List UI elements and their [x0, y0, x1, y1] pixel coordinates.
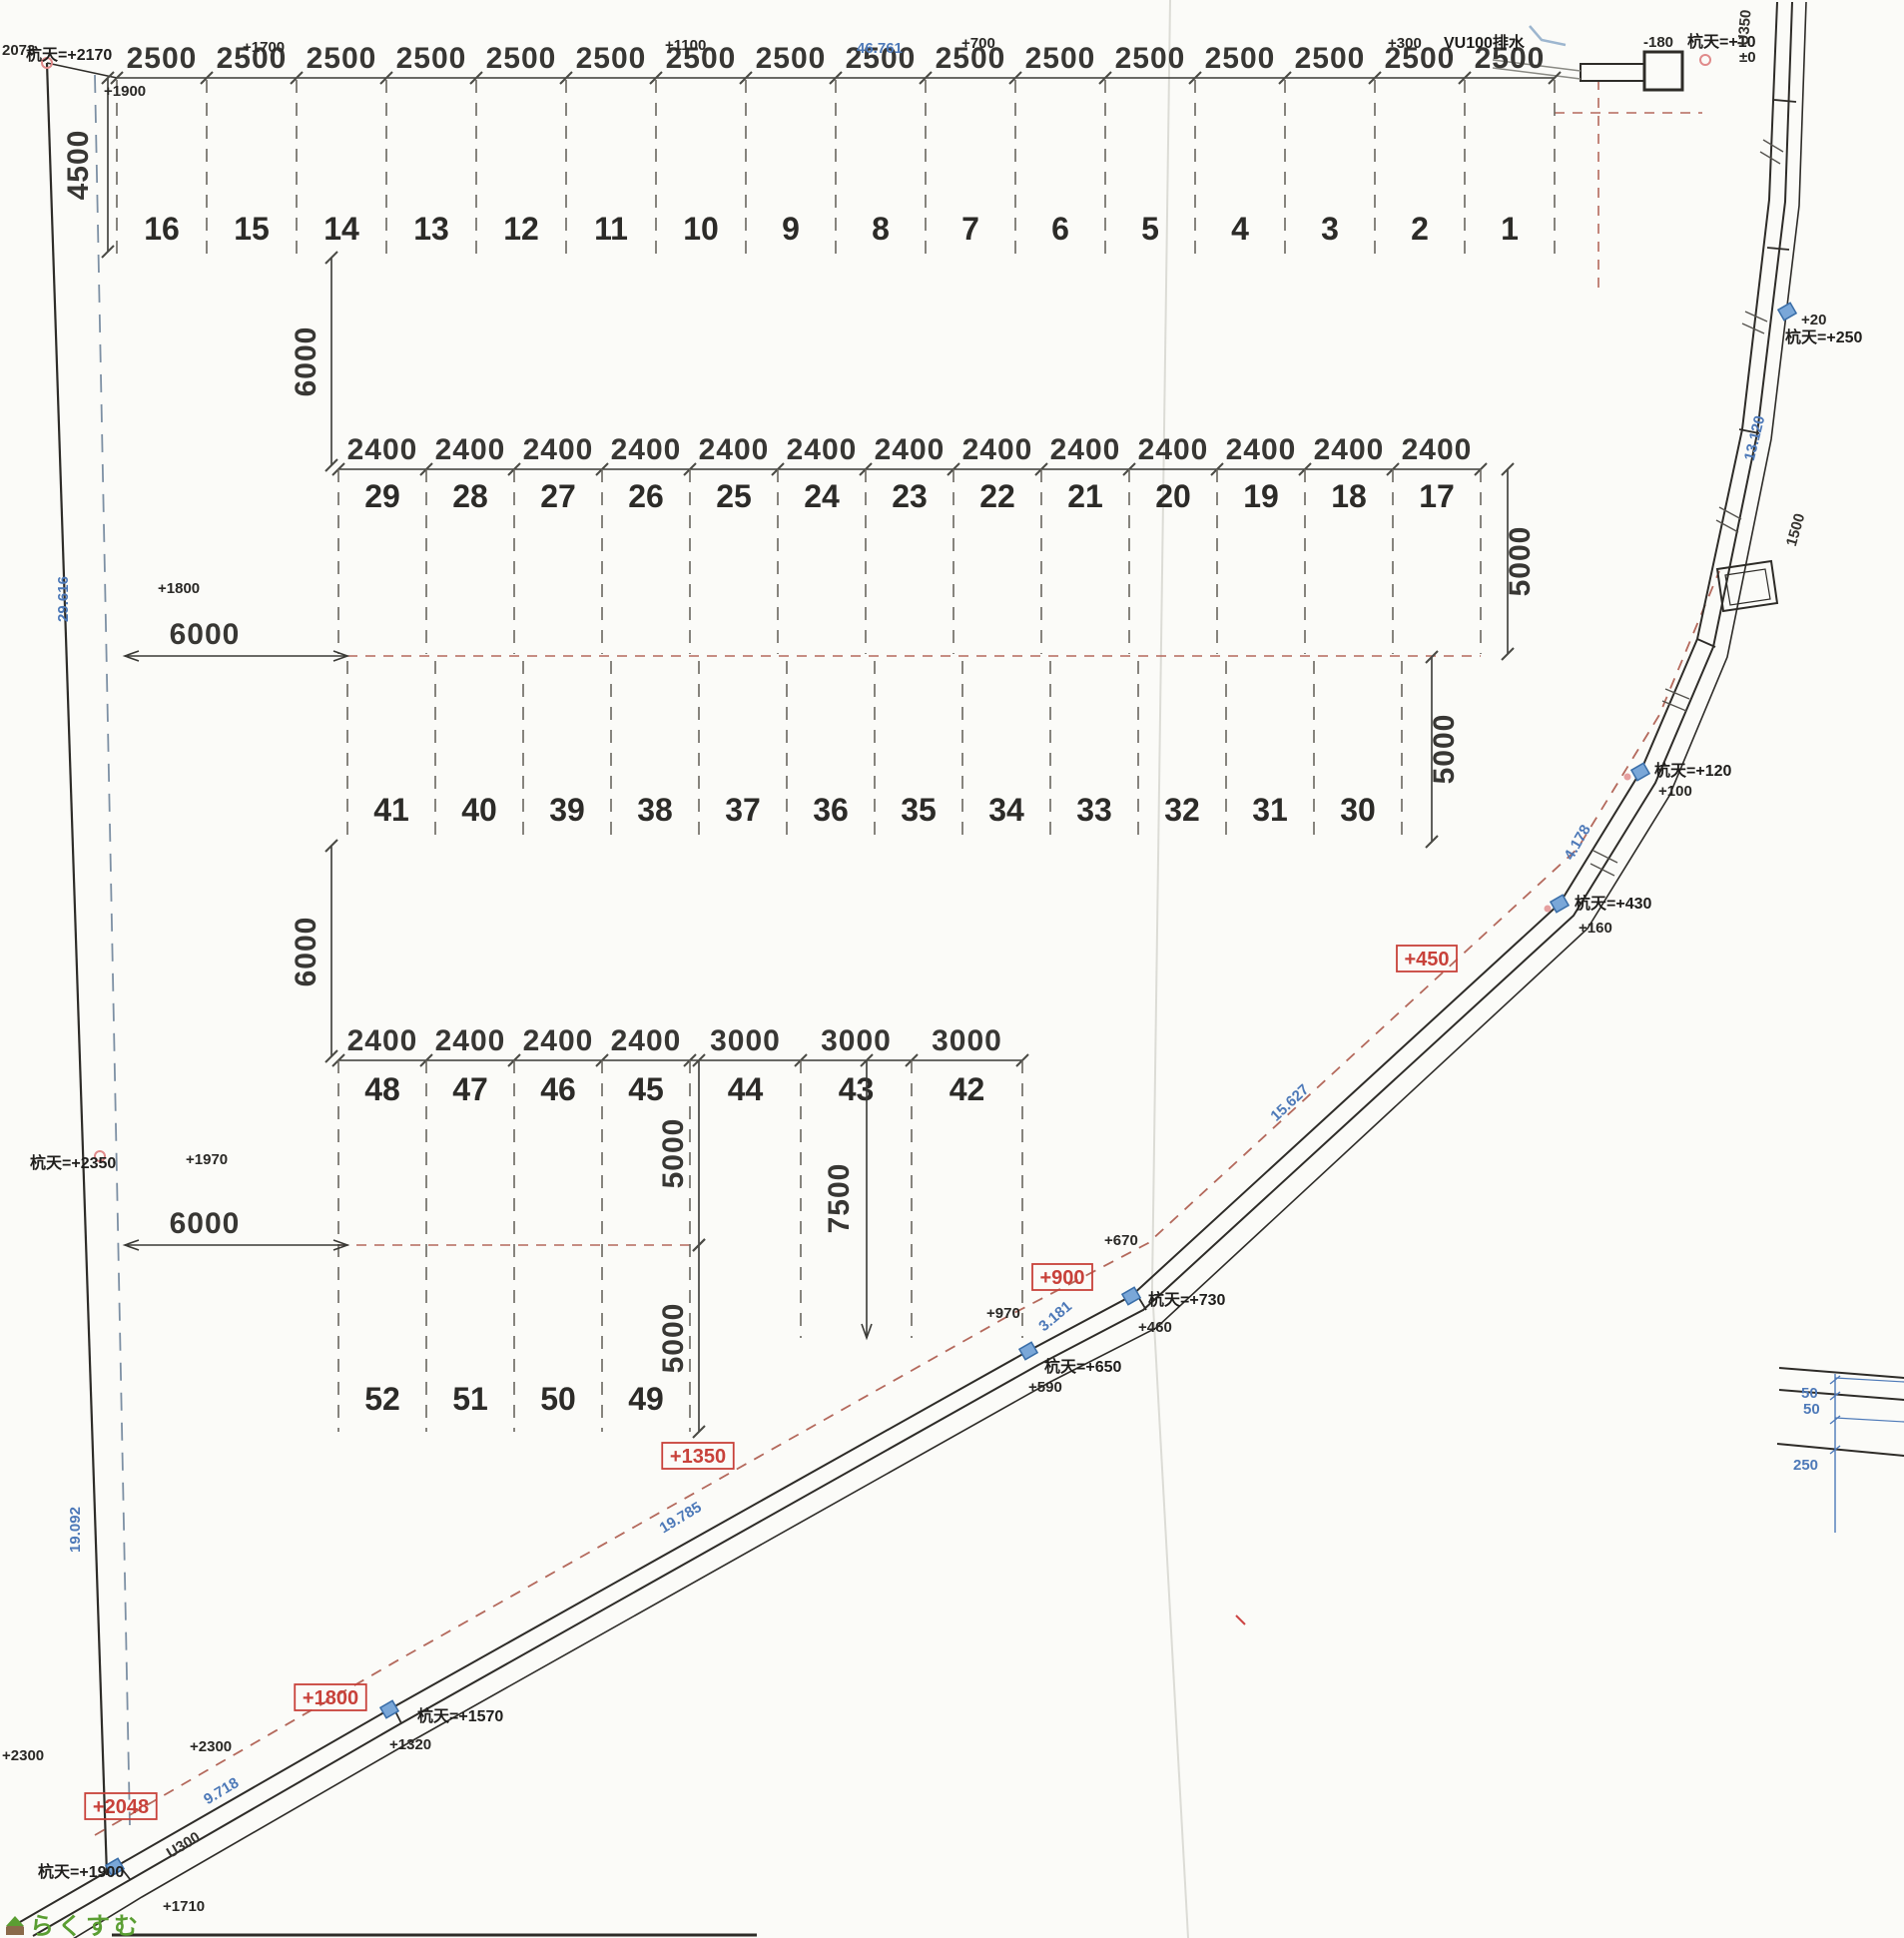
stall-number: 26 [628, 478, 664, 514]
culvert-box [1644, 52, 1682, 90]
grade-label: +1800 [303, 1687, 358, 1709]
stall-number: 28 [452, 478, 488, 514]
stall-number: 3 [1321, 211, 1339, 247]
pile-symbol [1631, 763, 1649, 780]
drawing-layer: 2500250025002500250025002500250025002500… [2, 0, 1904, 1938]
stall-width-dim: 2400 [875, 433, 946, 466]
stall-number: 9 [782, 211, 800, 247]
dimension-6000 [325, 840, 337, 1062]
stall-width-dim: 2400 [1402, 433, 1473, 466]
survey-distance: 50 [1803, 1401, 1820, 1418]
block-depth-dim: 5000 [1504, 526, 1537, 597]
grade-label: +2048 [93, 1796, 149, 1818]
spot-elevation: +590 [1028, 1379, 1062, 1396]
pile-top-label: 杭天=+250 [1785, 327, 1862, 346]
stall-number: 47 [452, 1071, 488, 1107]
stall-number: 52 [364, 1381, 400, 1417]
stall-number: 48 [364, 1071, 400, 1107]
watermark: らくすむ [6, 1913, 142, 1938]
spot-elevation: +300 [1388, 35, 1422, 52]
stall-width-dim: 2500 [127, 42, 198, 75]
spot-elevation: +160 [1579, 920, 1612, 937]
stall-number: 8 [872, 211, 890, 247]
stall-width-dim: 3000 [710, 1024, 781, 1057]
spot-elevation: +2300 [2, 1747, 44, 1764]
annotations [85, 946, 1457, 1819]
spot-elevation: +1800 [158, 580, 200, 597]
survey-distance: 46.761 [857, 40, 903, 57]
stall-width-dim: 2500 [1025, 42, 1096, 75]
stall-number: 45 [628, 1071, 664, 1107]
road-note: U300 [164, 1829, 203, 1862]
pile-top-label: 杭天=+430 [1575, 894, 1651, 913]
survey-distance: 9.718 [201, 1774, 242, 1808]
stall-number: 22 [979, 478, 1015, 514]
stall-number: 51 [452, 1381, 488, 1417]
stall-number: 19 [1243, 478, 1279, 514]
road-note: U350 [1734, 9, 1754, 46]
road [20, 2, 1806, 1938]
pile-top-label: 杭天=+2350 [30, 1153, 116, 1172]
stall-number: 35 [901, 792, 937, 828]
stall-number: 14 [323, 211, 359, 247]
survey-distance: 19.092 [67, 1507, 84, 1553]
pile-symbol [1019, 1342, 1037, 1359]
aisle-dim: 6000 [170, 1207, 241, 1240]
stall-width-dim: 3000 [821, 1024, 892, 1057]
spot-elevation: +460 [1138, 1319, 1172, 1336]
road-note: 1500 [1783, 511, 1809, 548]
stall-number: 16 [144, 211, 180, 247]
stall-number: 18 [1331, 478, 1367, 514]
dimension-6000 [325, 252, 337, 471]
watermark-text: らくすむ [30, 1913, 142, 1938]
stall-number: 40 [461, 792, 497, 828]
stall-number: 46 [540, 1071, 576, 1107]
stall-width-dim: 2500 [756, 42, 827, 75]
stall-number: 36 [813, 792, 849, 828]
survey-distance: 250 [1793, 1457, 1818, 1474]
stall-number: 32 [1164, 792, 1200, 828]
spot-elevation: +100 [1658, 783, 1692, 800]
stall-number: 27 [540, 478, 576, 514]
stall-number: 37 [725, 792, 761, 828]
stall-number: 2 [1411, 211, 1429, 247]
stall-width-dim: 2400 [523, 433, 594, 466]
stall-number: 10 [683, 211, 719, 247]
grade-label: +450 [1404, 949, 1449, 970]
site-plan-drawing: 2500250025002500250025002500250025002500… [0, 0, 1904, 1938]
spot-elevation: ±0 [1739, 49, 1756, 66]
stall-width-dim: 2400 [611, 1024, 682, 1057]
site-plan-sheet: 2500250025002500250025002500250025002500… [0, 0, 1904, 1938]
stall-number: 41 [373, 792, 409, 828]
block-depth-dim: 5000 [657, 1303, 690, 1374]
block-depth-dim: 5000 [657, 1118, 690, 1189]
stall-number: 21 [1067, 478, 1103, 514]
survey-distance: 29.616 [55, 576, 72, 622]
stall-number: 38 [637, 792, 673, 828]
spot-elevation: -180 [1643, 34, 1673, 51]
stall-number: 50 [540, 1381, 576, 1417]
pile-top-label: VU100排水 [1444, 33, 1526, 52]
dimension-5000 [693, 1239, 705, 1438]
stall-number: 11 [594, 211, 628, 247]
stall-number: 17 [1419, 478, 1455, 514]
survey-dot [1545, 906, 1552, 913]
stall-width-dim: 2400 [1226, 433, 1297, 466]
stall-width-dim: 2400 [1314, 433, 1385, 466]
stall-width-dim: 2400 [435, 1024, 506, 1057]
dimension-5000 [693, 1054, 705, 1251]
stall-width-dim: 2500 [396, 42, 467, 75]
block-depth-dim: 5000 [1428, 714, 1461, 785]
spot-elevation: +700 [961, 35, 995, 52]
stall-number: 49 [628, 1381, 664, 1417]
stall-number: 43 [839, 1071, 875, 1107]
survey-dot [1624, 774, 1631, 781]
stall-number: 42 [950, 1071, 985, 1107]
block-depth-dim: 4500 [62, 130, 95, 201]
kerb-detail [1777, 1368, 1904, 1533]
stall-number: 33 [1076, 792, 1112, 828]
survey-point [1700, 55, 1710, 65]
survey-distance: 15.627 [1267, 1081, 1312, 1125]
spot-elevation: +1710 [163, 1898, 205, 1915]
survey-distance: 19.785 [657, 1499, 705, 1537]
site-boundary [47, 63, 757, 1935]
spot-elevation: +1700 [243, 39, 285, 56]
stall-number: 24 [804, 478, 840, 514]
stall-width-dim: 2500 [576, 42, 647, 75]
stall-row-3 [347, 661, 1402, 844]
spot-elevation: +20 [1801, 312, 1826, 328]
spot-elevation: +970 [986, 1305, 1020, 1322]
grade-label: +900 [1039, 1267, 1084, 1289]
spot-elevation: +1320 [389, 1736, 431, 1753]
stall-number: 12 [503, 211, 539, 247]
dimension-6000 [125, 651, 347, 661]
stall-number: 1 [1501, 211, 1519, 247]
stall-width-dim: 2400 [787, 433, 858, 466]
pile-top-label: 杭天=+650 [1044, 1357, 1121, 1376]
stall-width-dim: 2400 [523, 1024, 594, 1057]
stall-width-dim: 2500 [307, 42, 377, 75]
stall-number: 6 [1051, 211, 1069, 247]
stall-width-dim: 2500 [1295, 42, 1366, 75]
stall-number: 15 [234, 211, 270, 247]
culvert-bar [1581, 64, 1644, 81]
survey-distance: 13.120 [1741, 414, 1769, 463]
stall-width-dim: 2400 [699, 433, 770, 466]
stall-width-dim: 2400 [435, 433, 506, 466]
stall-number: 34 [988, 792, 1024, 828]
stall-width-dim: 2400 [1138, 433, 1209, 466]
stall-number: 44 [728, 1071, 764, 1107]
stall-width-dim: 2500 [1115, 42, 1186, 75]
stall-number: 30 [1340, 792, 1376, 828]
stall-number: 39 [549, 792, 585, 828]
stall-number: 4 [1231, 211, 1249, 247]
stall-width-dim: 2400 [611, 433, 682, 466]
pile-symbol [380, 1700, 398, 1717]
stall-row-4 [332, 1054, 1028, 1432]
stall-number: 13 [413, 211, 449, 247]
block-depth-dim: 6000 [290, 917, 322, 987]
spot-elevation: +1100 [665, 37, 706, 54]
pile-symbol [1778, 303, 1796, 320]
stall-number: 7 [961, 211, 979, 247]
survey-distance: 50 [1801, 1385, 1818, 1402]
stall-width-dim: 2400 [1050, 433, 1121, 466]
stall-width-dim: 2500 [1205, 42, 1276, 75]
pile-top-label: 杭天=+1570 [417, 1706, 503, 1725]
stall-width-dim: 2400 [962, 433, 1033, 466]
stall-width-dim: 2400 [347, 433, 418, 466]
pile-top-label: 杭天=+1900 [38, 1862, 124, 1881]
spot-elevation: +1970 [186, 1151, 228, 1168]
aisle-dim: 6000 [170, 618, 241, 651]
pile-top-label: 杭天=+2170 [26, 45, 112, 64]
stall-width-dim: 2500 [486, 42, 557, 75]
spot-elevation: +1900 [104, 83, 146, 100]
red-dashed-lines [95, 80, 1719, 1835]
stall-width-dim: 2400 [347, 1024, 418, 1057]
stall-width-dim: 3000 [932, 1024, 1002, 1057]
spot-elevation: +2300 [190, 1738, 232, 1755]
spot-elevation: +670 [1104, 1232, 1138, 1249]
pile-top-label: 杭天=+730 [1148, 1290, 1225, 1309]
grade-label: +1350 [670, 1446, 726, 1468]
stall-number: 25 [716, 478, 752, 514]
stall-number: 20 [1155, 478, 1191, 514]
block-depth-dim: 6000 [290, 326, 322, 397]
stall-number: 23 [892, 478, 928, 514]
stall-number: 29 [364, 478, 400, 514]
block-depth-dim: 7500 [823, 1163, 856, 1234]
stall-number: 31 [1252, 792, 1288, 828]
dimension-6000 [125, 1240, 347, 1250]
stall-number: 5 [1141, 211, 1159, 247]
pile-top-label: 杭天=+120 [1654, 761, 1731, 780]
